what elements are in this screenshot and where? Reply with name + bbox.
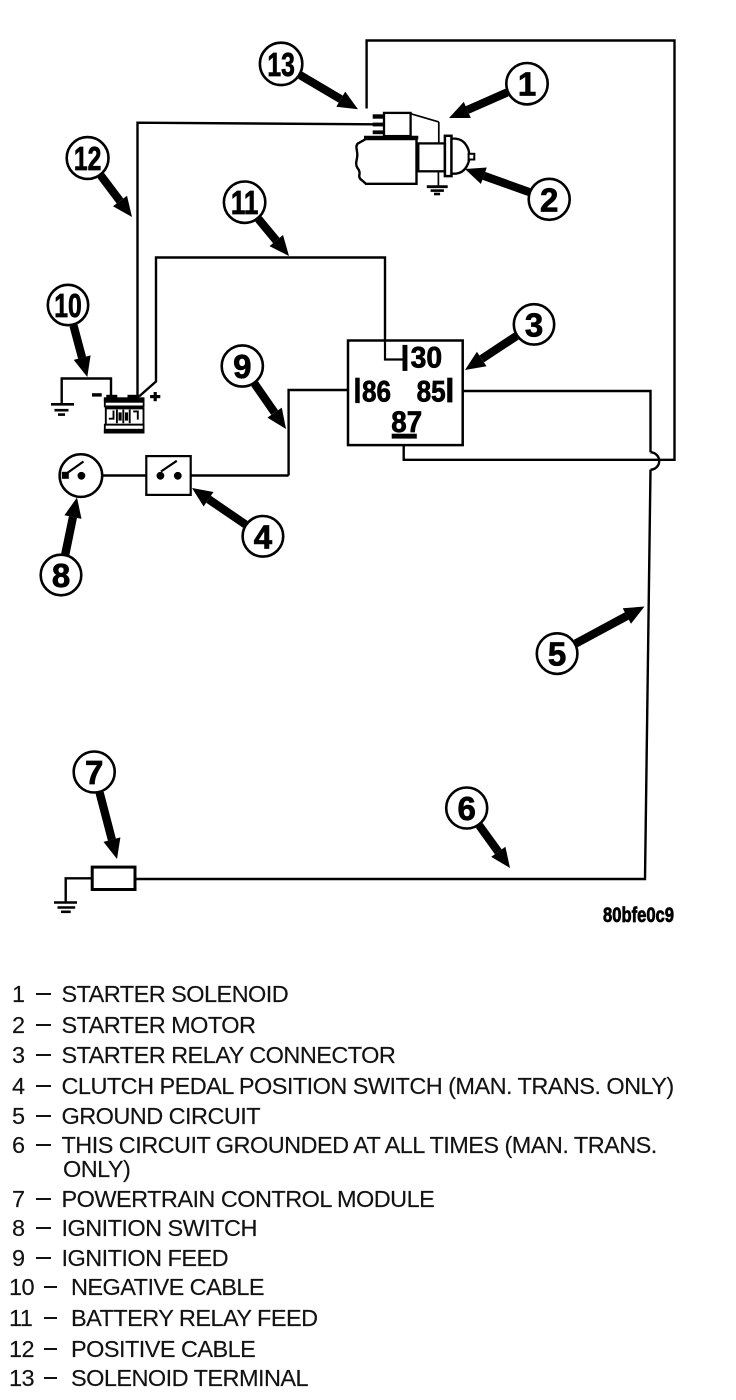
svg-text:12: 12 <box>74 140 102 177</box>
svg-text:9: 9 <box>233 348 251 385</box>
svg-text:13: 13 <box>267 46 295 83</box>
svg-text:80bfe0c9: 80bfe0c9 <box>603 904 674 927</box>
svg-text:30: 30 <box>411 342 443 375</box>
svg-text:7: 7 <box>85 754 103 791</box>
svg-text:8: 8 <box>52 557 70 594</box>
svg-text:2: 2 <box>540 181 558 218</box>
svg-text:6: 6 <box>458 790 476 827</box>
svg-text:11: 11 <box>231 184 259 221</box>
svg-text:1: 1 <box>518 66 536 103</box>
svg-text:5: 5 <box>548 636 566 673</box>
svg-text:87: 87 <box>391 406 422 439</box>
svg-text:85: 85 <box>417 376 446 409</box>
svg-text:3: 3 <box>525 306 543 343</box>
svg-text:4: 4 <box>254 518 273 555</box>
svg-text:10: 10 <box>54 287 82 324</box>
svg-text:86: 86 <box>362 376 391 409</box>
